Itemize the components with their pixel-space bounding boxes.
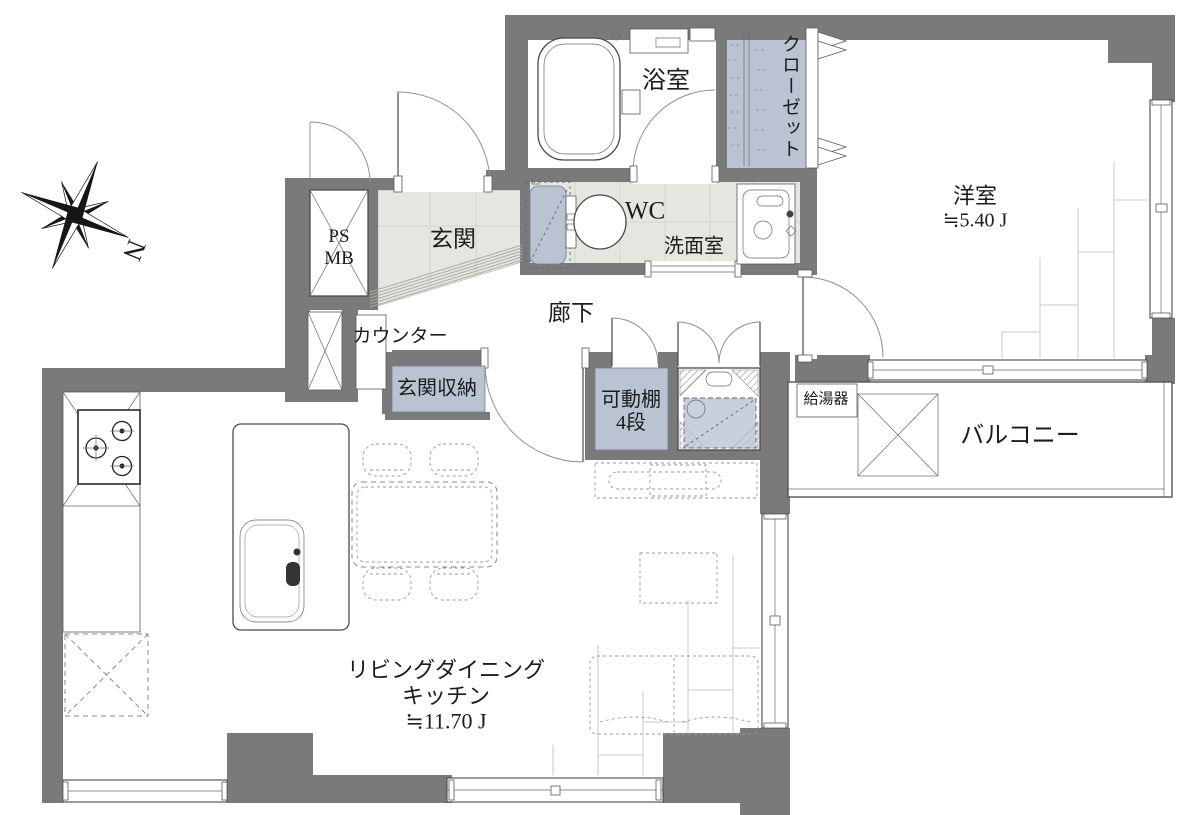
window-western-room-east [1150,100,1172,318]
label-movable-shelf: 可動棚 4段 [601,389,661,435]
label-entrance: 玄関 [430,227,476,254]
compass-rose [22,162,129,269]
label-shaft-mb: MB [324,248,354,270]
label-movable-shelf-line1: 可動棚 [601,389,661,412]
entrance-door [394,92,492,192]
window-ldk-balcony [762,514,788,728]
label-western-room: 洋室 ≒5.40 J [943,184,1008,233]
kitchen-sink-island [233,424,349,630]
label-entrance-storage: 玄関収納 [397,377,477,400]
bathtub [538,38,620,160]
label-ldk-line2: キッチン [347,683,545,709]
western-room-door [798,270,883,362]
ldk-door [481,348,589,462]
label-water-heater: 給湯器 [803,391,848,408]
dining-chairs [363,444,478,600]
washing-machine-space [678,368,760,450]
closet-folding-doors [806,28,846,168]
washbasin [737,184,796,264]
label-ldk-line1: リビングダイニング [347,658,545,684]
label-washroom: 洗面室 [664,235,724,258]
window-ldk-south [447,778,663,802]
label-western-room-size: ≒5.40 J [943,209,1008,232]
label-movable-shelf-line2: 4段 [601,412,661,435]
laundry-double-doors [678,322,760,368]
meter-box-door [310,122,370,182]
label-ldk: リビングダイニング キッチン ≒11.70 J [347,658,545,735]
gas-stove [63,392,140,632]
coffee-table [640,553,717,603]
window-kitchen-south [63,780,227,802]
refrigerator-space [65,634,148,716]
label-counter: カウンター [352,326,447,348]
label-balcony: バルコニー [960,423,1080,451]
label-bathroom: 浴室 [642,68,690,96]
shelf-closet-door [612,318,658,368]
label-closet: クローゼット [778,34,800,160]
tv-board [595,463,757,498]
label-hallway: 廊下 [548,301,594,328]
label-shaft-ps: PS [324,226,354,248]
label-utility-shaft: PS MB [324,226,354,270]
label-wc: WC [625,197,665,226]
dining-table [352,482,497,567]
floor-plan-drawing [0,0,1195,815]
washroom-sliding-door [645,261,741,277]
label-ldk-size: ≒11.70 J [347,709,545,735]
window-western-room-balcony [868,360,1147,380]
label-western-room-name: 洋室 [943,184,1008,210]
floor-plan: 浴室 クローゼット 洋室 ≒5.40 J PS MB 玄関 WC 洗面室 廊下 … [0,0,1195,815]
